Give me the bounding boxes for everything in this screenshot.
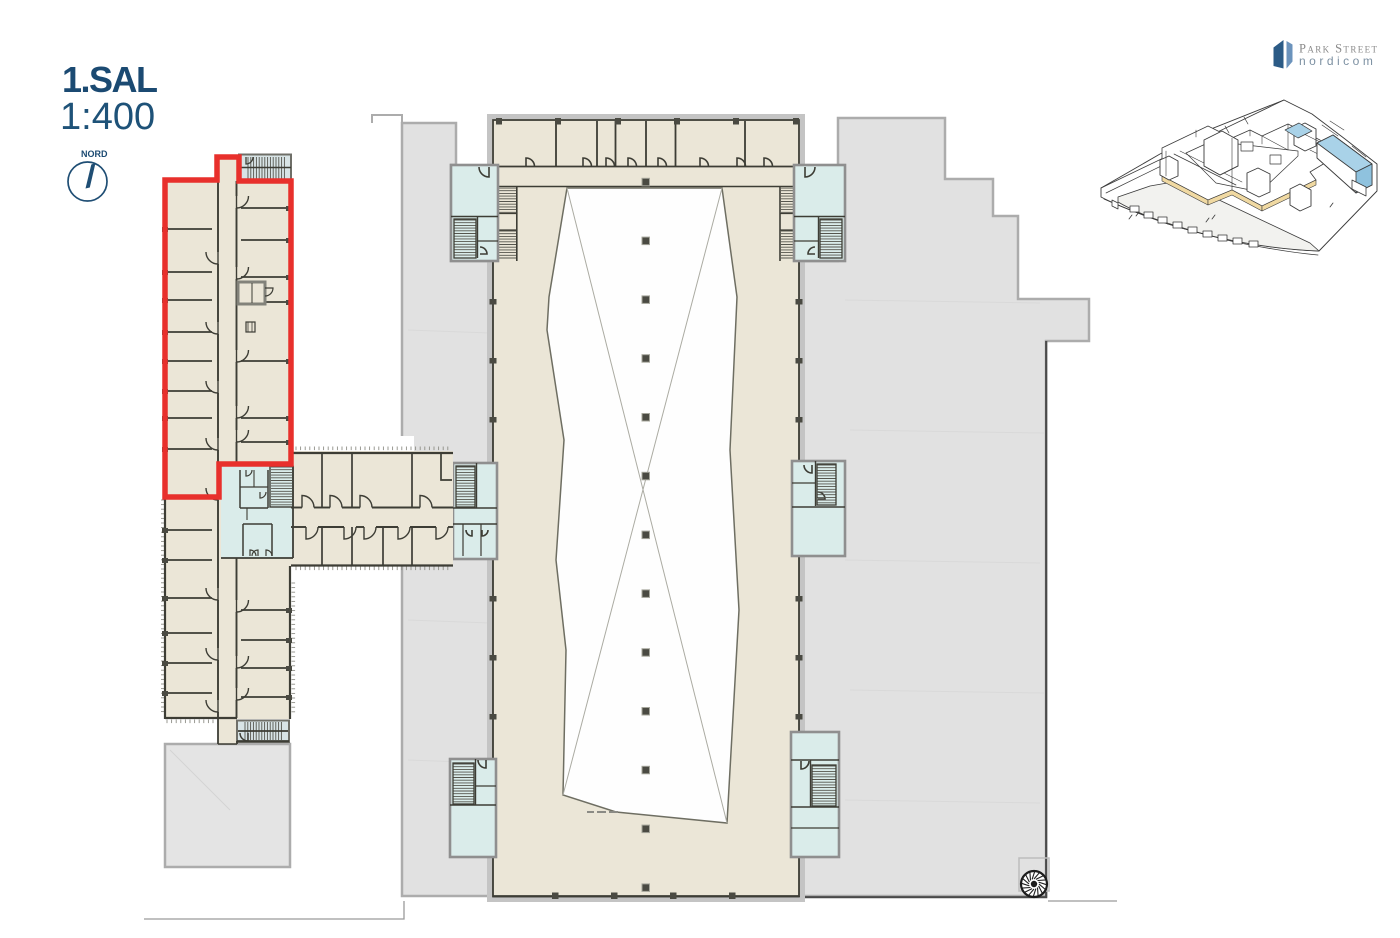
svg-text:nordicom: nordicom [1299,54,1376,68]
svg-text:1.SAL: 1.SAL [62,59,157,100]
svg-text:NORD: NORD [81,149,108,159]
svg-text:1:400: 1:400 [60,96,155,138]
